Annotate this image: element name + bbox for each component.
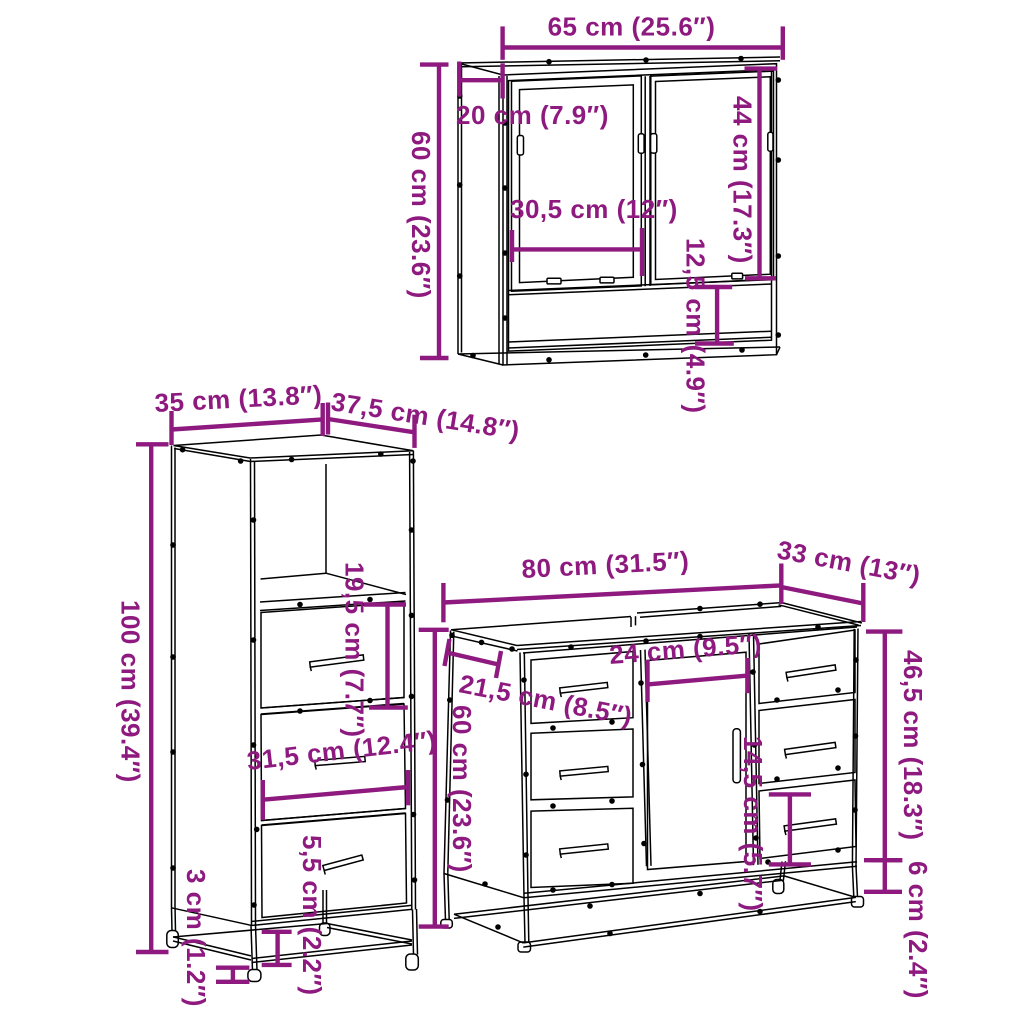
svg-text:46,5 cm (18.3″): 46,5 cm (18.3″) — [898, 650, 928, 841]
svg-text:60 cm (23.6″): 60 cm (23.6″) — [447, 705, 477, 873]
svg-text:100 cm (39.4″): 100 cm (39.4″) — [116, 600, 146, 783]
svg-text:60 cm (23.6″): 60 cm (23.6″) — [406, 131, 436, 299]
svg-text:12,5 cm (4.9″): 12,5 cm (4.9″) — [681, 238, 711, 414]
svg-text:5,5 cm (2.2″): 5,5 cm (2.2″) — [297, 835, 327, 996]
svg-text:14,5 cm (5.7″): 14,5 cm (5.7″) — [738, 736, 768, 912]
svg-text:19,5 cm (7.7″): 19,5 cm (7.7″) — [340, 562, 370, 738]
svg-text:20 cm (7.9″): 20 cm (7.9″) — [456, 100, 609, 130]
svg-text:30,5 cm (12″): 30,5 cm (12″) — [510, 194, 678, 224]
svg-text:44 cm (17.3″): 44 cm (17.3″) — [728, 96, 758, 264]
svg-text:6 cm (2.4″): 6 cm (2.4″) — [903, 861, 933, 999]
svg-text:65 cm (25.6″): 65 cm (25.6″) — [548, 12, 716, 42]
svg-text:3 cm (1.2″): 3 cm (1.2″) — [181, 869, 211, 1007]
